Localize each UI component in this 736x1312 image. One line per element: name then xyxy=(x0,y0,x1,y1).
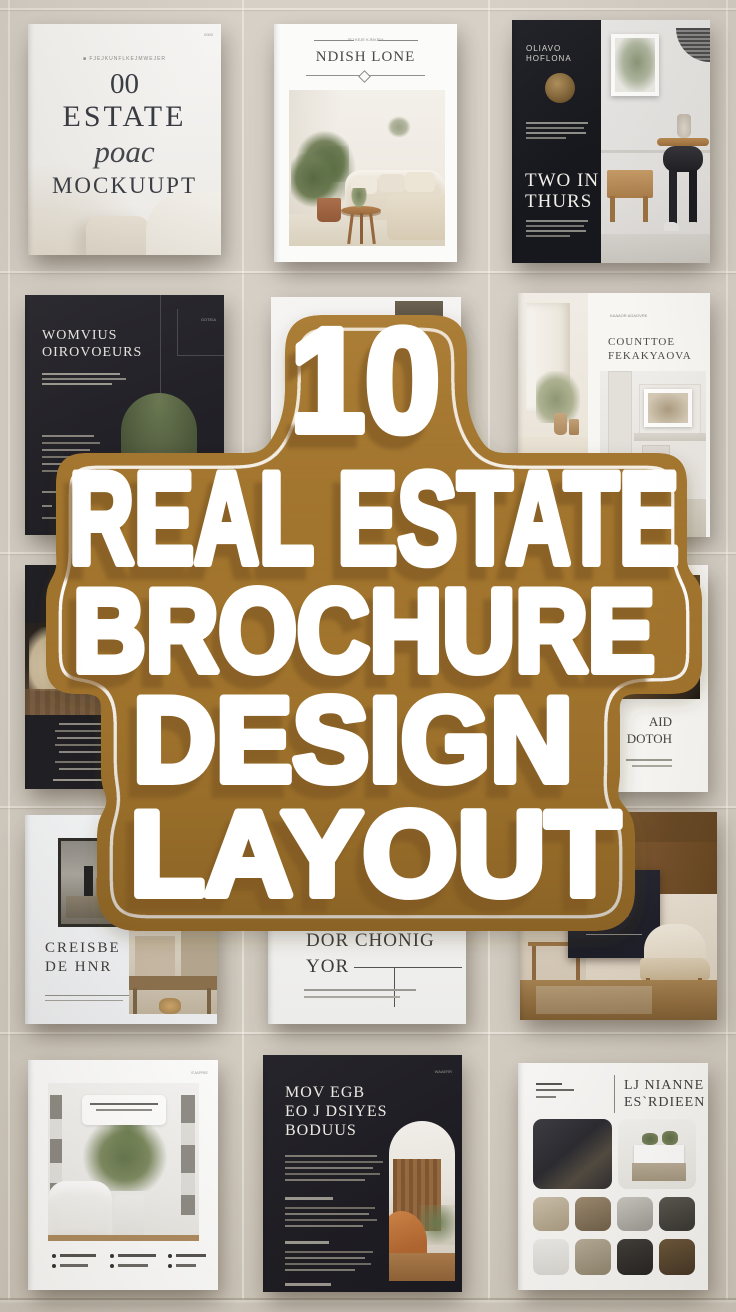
svg-text:10: 10 xyxy=(290,299,440,463)
svg-text:LAYOUT: LAYOUT xyxy=(130,787,620,921)
